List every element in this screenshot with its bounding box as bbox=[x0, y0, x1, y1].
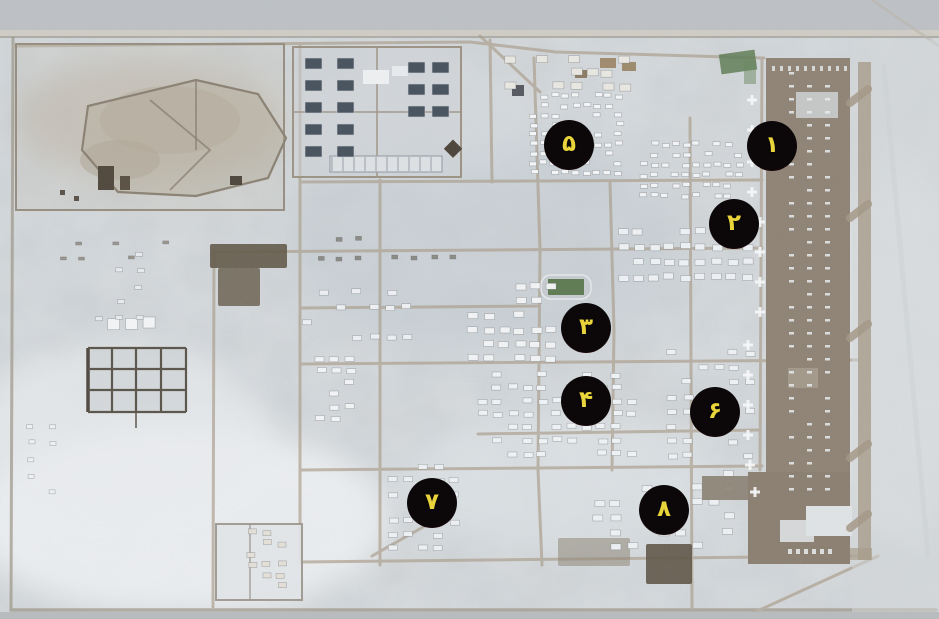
marker-number: ۱ bbox=[765, 134, 779, 157]
marker-number: ۶ bbox=[708, 400, 722, 423]
map-marker-5: ۵ bbox=[544, 120, 594, 170]
map-marker-1: ۱ bbox=[747, 121, 797, 171]
marker-number: ۲ bbox=[727, 212, 741, 235]
map-marker-4: ۴ bbox=[561, 376, 611, 426]
marker-number: ۴ bbox=[579, 389, 593, 412]
marker-number: ۷ bbox=[425, 491, 439, 514]
map-marker-8: ۸ bbox=[639, 485, 689, 535]
marker-number: ۸ bbox=[657, 498, 671, 521]
map-marker-3: ۳ bbox=[561, 303, 611, 353]
marker-number: ۳ bbox=[579, 316, 593, 339]
map-marker-7: ۷ bbox=[407, 478, 457, 528]
marker-layer: ۱۲۳۴۵۶۷۸ bbox=[0, 0, 939, 619]
annotated-satellite-image: ۱۲۳۴۵۶۷۸ bbox=[0, 0, 939, 619]
marker-number: ۵ bbox=[562, 133, 576, 156]
map-marker-2: ۲ bbox=[709, 199, 759, 249]
map-marker-6: ۶ bbox=[690, 387, 740, 437]
